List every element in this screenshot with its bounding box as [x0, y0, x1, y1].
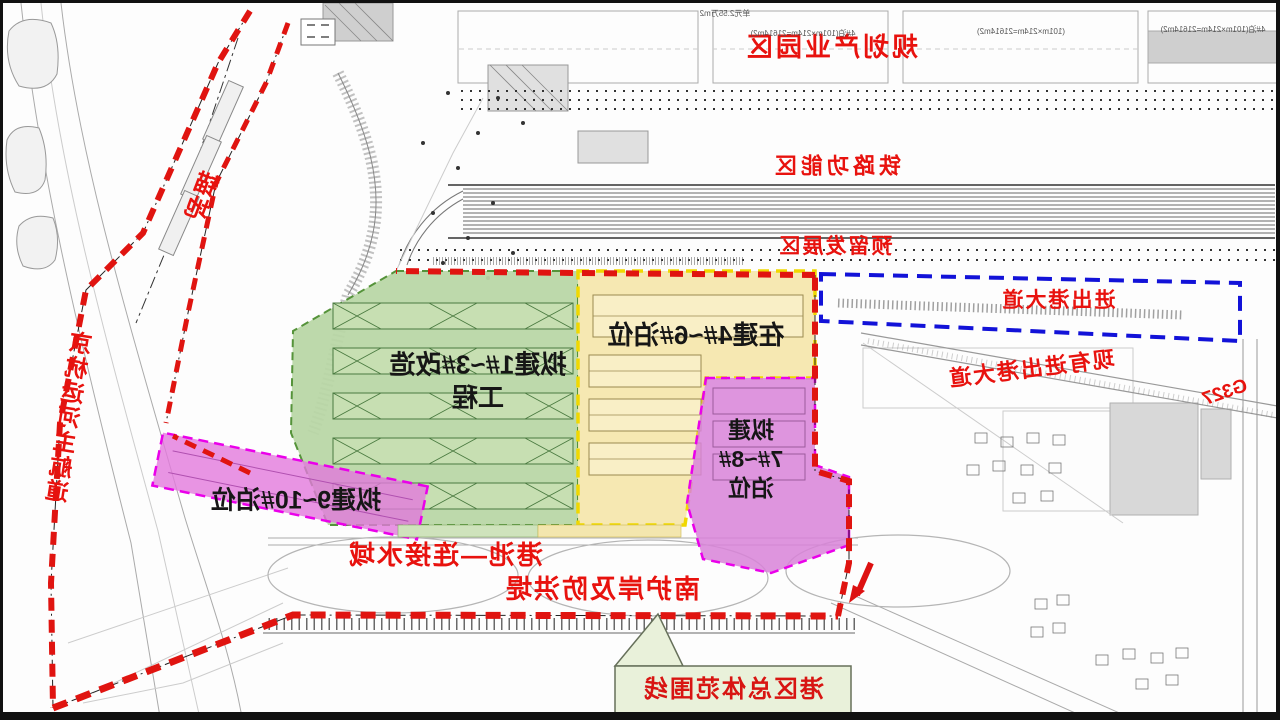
apron-strip-yellow — [538, 525, 681, 537]
site-plan-screenshot: 规划产业园区 铁路功能区 预留发展区 进出港大道 现有进出港大道 G327 锚地… — [0, 0, 1280, 720]
port-avenue-label: 进出港大道 — [1001, 288, 1116, 314]
yellow-zone-label: 在建4#~6#泊位 — [607, 319, 784, 352]
area-annotation-unit: 单元2.55万m2 — [700, 9, 751, 19]
west-berths-label: 拟建9~10#泊位 — [211, 485, 381, 516]
apron-strip-green — [398, 525, 538, 537]
magenta-zone-label-line2: 7#~8# — [719, 445, 784, 474]
railway-zone-label: 铁路功能区 — [771, 152, 901, 180]
mirrored-map-container: 规划产业园区 铁路功能区 预留发展区 进出港大道 现有进出港大道 G327 锚地… — [3, 3, 1280, 720]
green-zone-label-line2: 工程 — [389, 381, 566, 414]
boundary-callout-label: 港区总体范围线 — [642, 675, 824, 705]
red-arrow-marker — [849, 563, 871, 603]
basin-label: 港池—连接水域 — [347, 539, 543, 572]
area-annotation-berth-a: 4#泊(101m×214m=21614m2) — [751, 29, 856, 39]
reserved-zone-label: 预留发展区 — [778, 234, 893, 260]
revetment-label: 南护岸及防洪堤 — [504, 573, 700, 606]
area-annotation-berth-c: 4#泊(101m×214m=21614m2) — [1161, 25, 1266, 35]
magenta-zone-label: 拟建 7#~8# 泊位 — [719, 416, 784, 502]
area-annotation-berth-b: (101m×214m=21614m2) — [977, 27, 1065, 37]
green-zone-label-line1: 拟建1#~3#改造 — [389, 349, 566, 382]
green-zone-label: 拟建1#~3#改造 工程 — [389, 349, 566, 414]
magenta-zone-label-line1: 拟建 — [719, 416, 784, 445]
magenta-zone-label-line3: 泊位 — [719, 473, 784, 502]
canal-linework — [6, 3, 243, 720]
